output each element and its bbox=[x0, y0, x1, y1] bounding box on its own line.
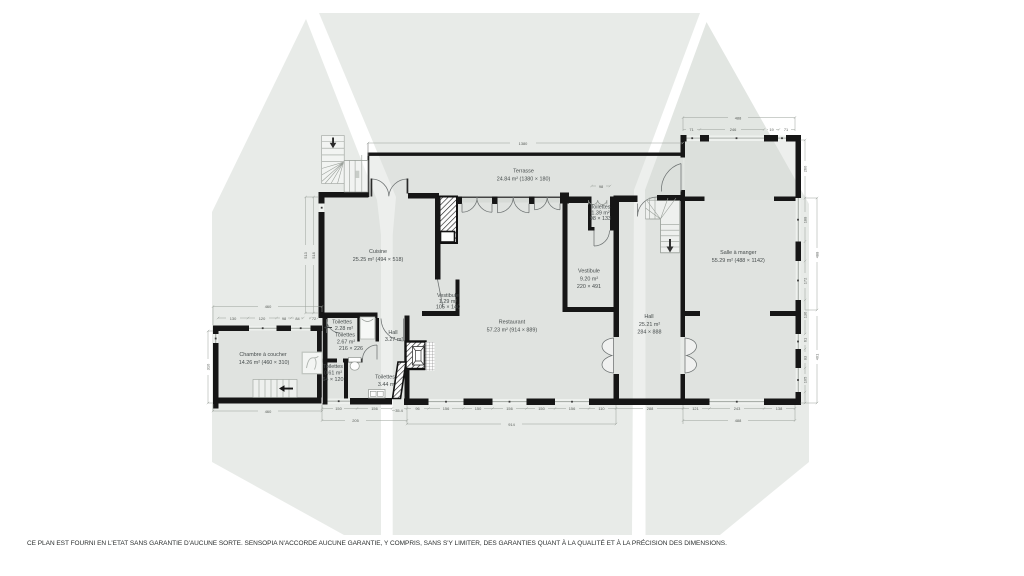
svg-text:83: 83 bbox=[803, 356, 808, 360]
svg-text:150: 150 bbox=[538, 406, 545, 411]
svg-text:Toilettes: Toilettes bbox=[375, 375, 395, 381]
svg-text:460: 460 bbox=[265, 409, 272, 414]
svg-text:105: 105 bbox=[803, 377, 808, 384]
svg-text:Restaurant: Restaurant bbox=[499, 320, 526, 326]
svg-text:188: 188 bbox=[803, 217, 808, 224]
svg-text:488: 488 bbox=[735, 115, 742, 120]
svg-text:220 × 491: 220 × 491 bbox=[577, 284, 601, 290]
svg-text:130: 130 bbox=[230, 316, 237, 321]
svg-text:288: 288 bbox=[647, 406, 654, 411]
svg-text:120: 120 bbox=[259, 316, 266, 321]
svg-text:284 × 888: 284 × 888 bbox=[637, 330, 661, 336]
svg-text:Salle à manger: Salle à manger bbox=[720, 250, 756, 256]
svg-text:0.61 m²: 0.61 m² bbox=[324, 371, 342, 377]
svg-text:138: 138 bbox=[776, 406, 783, 411]
svg-text:35.4: 35.4 bbox=[395, 408, 403, 413]
svg-text:55.29 m² (488 × 1142): 55.29 m² (488 × 1142) bbox=[712, 258, 765, 264]
svg-text:98: 98 bbox=[599, 184, 603, 189]
svg-text:2.67 m²: 2.67 m² bbox=[337, 340, 355, 346]
svg-text:488: 488 bbox=[735, 418, 742, 423]
svg-text:243: 243 bbox=[734, 406, 741, 411]
svg-text:150: 150 bbox=[335, 406, 342, 411]
svg-text:25.25 m² (494 × 518): 25.25 m² (494 × 518) bbox=[353, 257, 404, 263]
svg-text:14.26 m² (460 × 310): 14.26 m² (460 × 310) bbox=[239, 360, 290, 366]
svg-text:98 × 133: 98 × 133 bbox=[590, 216, 611, 222]
svg-text:156: 156 bbox=[506, 406, 513, 411]
svg-text:19: 19 bbox=[769, 127, 773, 132]
svg-text:71: 71 bbox=[689, 127, 693, 132]
svg-text:71: 71 bbox=[784, 127, 788, 132]
svg-text:518: 518 bbox=[311, 252, 316, 259]
svg-text:216 × 226: 216 × 226 bbox=[339, 346, 363, 352]
svg-text:25.21 m²: 25.21 m² bbox=[639, 322, 660, 328]
svg-text:246: 246 bbox=[730, 127, 737, 132]
svg-text:156: 156 bbox=[569, 406, 576, 411]
svg-text:110: 110 bbox=[598, 406, 605, 411]
svg-text:150: 150 bbox=[475, 406, 482, 411]
svg-text:914: 914 bbox=[508, 422, 515, 427]
svg-text:513: 513 bbox=[303, 252, 308, 259]
svg-text:Toilettes: Toilettes bbox=[335, 333, 355, 339]
svg-text:310: 310 bbox=[206, 363, 211, 370]
svg-text:Toilettes: Toilettes bbox=[332, 320, 352, 326]
svg-text:57.23 m² (914 × 889): 57.23 m² (914 × 889) bbox=[487, 328, 538, 334]
svg-text:Toilettes: Toilettes bbox=[323, 364, 343, 370]
svg-text:156: 156 bbox=[371, 406, 378, 411]
svg-text:156: 156 bbox=[443, 406, 450, 411]
svg-text:Hall: Hall bbox=[644, 314, 653, 320]
svg-text:1380: 1380 bbox=[519, 141, 528, 146]
svg-text:488: 488 bbox=[815, 252, 820, 259]
svg-text:3.27 m²: 3.27 m² bbox=[385, 337, 403, 343]
svg-text:24.84 m² (1380 × 180): 24.84 m² (1380 × 180) bbox=[497, 177, 551, 183]
svg-text:2.28 m²: 2.28 m² bbox=[335, 326, 353, 332]
svg-text:260: 260 bbox=[803, 165, 808, 172]
svg-text:460: 460 bbox=[265, 304, 272, 309]
svg-text:Vestibule: Vestibule bbox=[578, 269, 600, 275]
svg-text:Terrasse: Terrasse bbox=[513, 168, 534, 174]
svg-text:136: 136 bbox=[803, 312, 808, 319]
svg-text:121: 121 bbox=[692, 406, 699, 411]
svg-text:401: 401 bbox=[815, 354, 820, 361]
svg-text:61: 61 bbox=[803, 338, 808, 342]
svg-text:96: 96 bbox=[415, 406, 419, 411]
svg-text:64 × 120: 64 × 120 bbox=[322, 377, 343, 383]
svg-text:72: 72 bbox=[312, 316, 316, 321]
svg-text:98: 98 bbox=[282, 316, 286, 321]
svg-text:205: 205 bbox=[352, 418, 359, 423]
svg-text:Chambre à coucher: Chambre à coucher bbox=[239, 352, 287, 358]
svg-text:Cuisine: Cuisine bbox=[369, 249, 387, 255]
svg-text:172: 172 bbox=[803, 278, 808, 285]
svg-text:105 × 140: 105 × 140 bbox=[436, 305, 460, 311]
svg-text:9.20 m²: 9.20 m² bbox=[580, 277, 598, 283]
svg-text:3.44 m²: 3.44 m² bbox=[378, 382, 396, 388]
svg-text:Hall: Hall bbox=[388, 330, 397, 336]
